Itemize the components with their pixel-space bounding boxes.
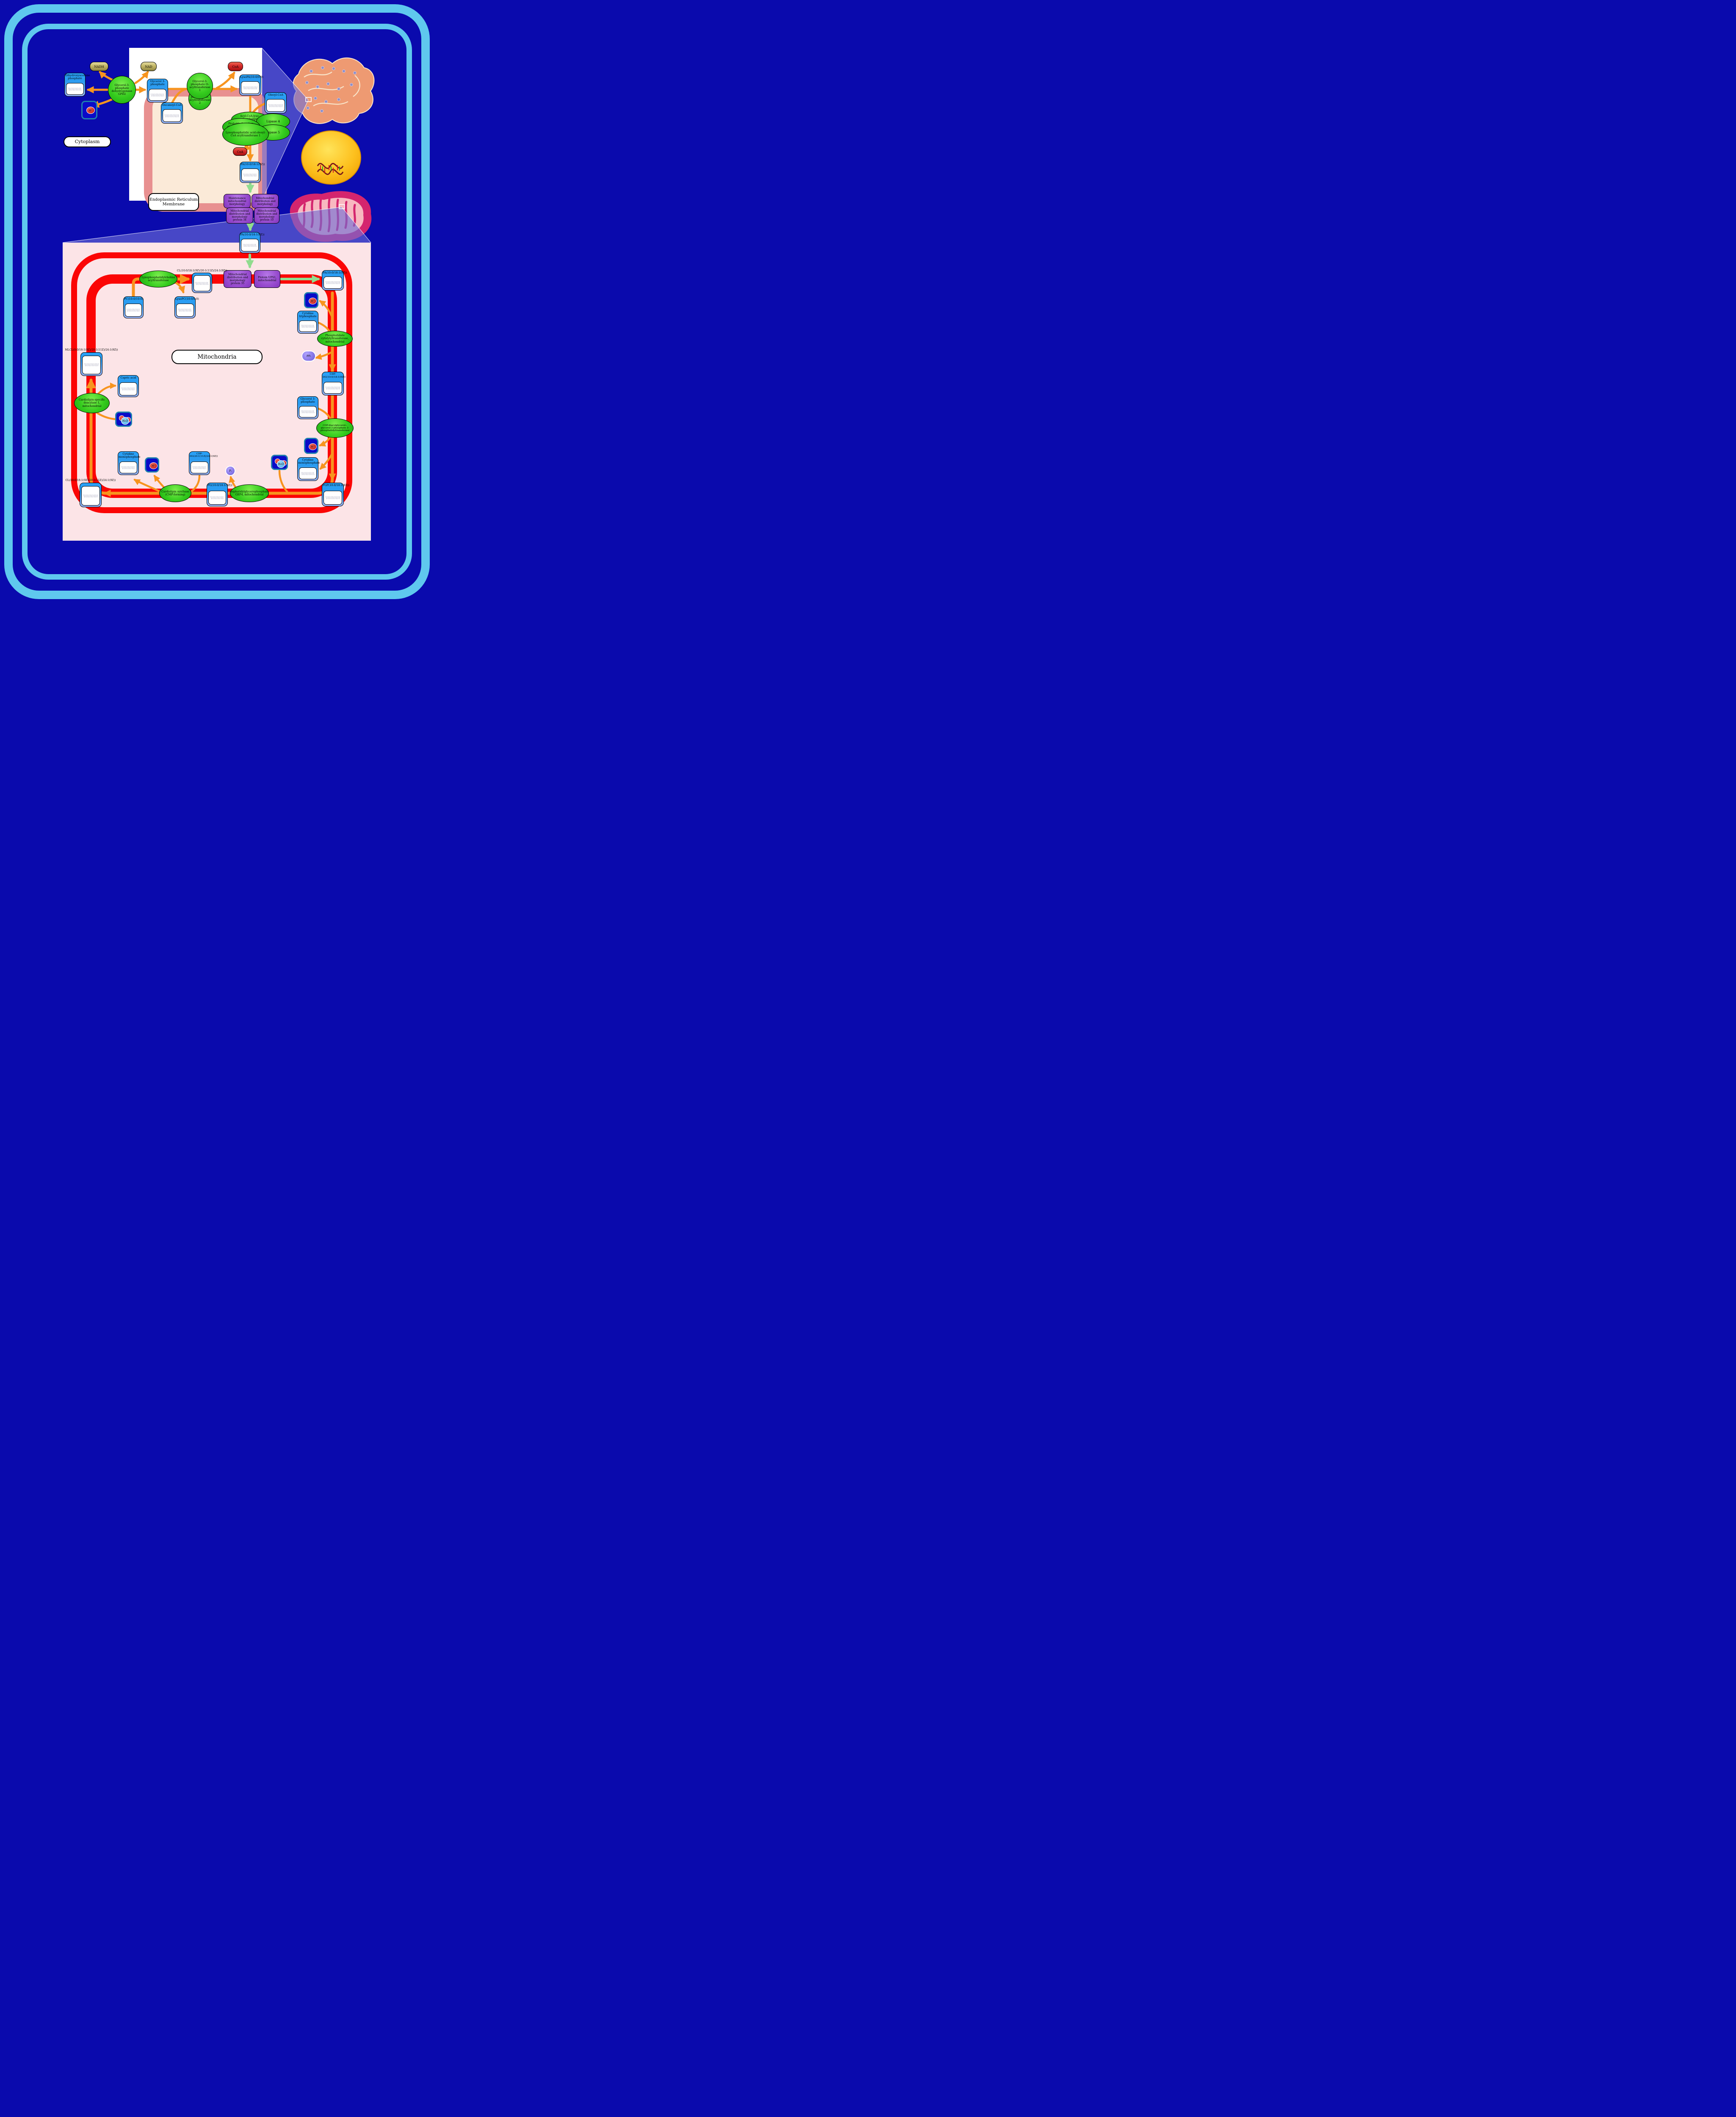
mmm-protein[interactable]: Maintenance mitochondrial morphology [224, 194, 251, 208]
g3p-er-label: Glycerol 3-phosphate [147, 79, 168, 86]
molecule-structure [301, 410, 315, 413]
nucleus-icon [301, 131, 361, 184]
er-illustration-icon [293, 58, 374, 124]
gpd2-label: Glycerol-3-phosphate dehydrogenase GPD2 [110, 84, 134, 96]
h-plus-label: H⁺ [88, 109, 92, 112]
er-membrane-label-text: Endoplasmic Reticulum Membrane [149, 197, 198, 207]
gpat1-enzyme[interactable]: Glycerol-3-phosphate O-acyltransferase 1 [187, 73, 213, 99]
pg-label: PG(10:0/18:1(9Z)) [207, 483, 227, 487]
cdp-dg2-node[interactable]: CDP-DG(20:1(11Z)/24:1(9Z)) [189, 451, 210, 475]
pa-er-node[interactable]: PA(10:0/18:1(9Z)) [240, 162, 261, 183]
molecule-structure [68, 88, 82, 91]
pathway-canvas: Cytoplasm Endoplasmic Reticulum Membrane… [0, 0, 434, 603]
nadh-label: NADH [94, 65, 104, 69]
pct-mito-label: Phosphatidate cytidylyltransferase, mito… [319, 334, 351, 343]
ups1-protein[interactable]: Protein UPS1, mitochondrial [254, 270, 280, 288]
cmp-left-label: Cytidine monophosphate [118, 452, 138, 459]
gep4-label: Phosphatidylglycerophosphatase GEP4, mit… [230, 490, 269, 496]
gpat1-label: Glycerol-3-phosphate O-acyltransferase 1 [188, 80, 211, 92]
pgs1-label: CDP-diacylglycerol--glycerol-3-phosphate… [318, 424, 352, 432]
capric-acid-node[interactable]: Capric acid [118, 375, 139, 397]
molecule-structure [301, 325, 315, 328]
pg-node[interactable]: PG(10:0/18:1(9Z)) [207, 483, 228, 506]
lysopa-node[interactable]: LysoPA(10:0/0:0) [239, 75, 261, 96]
coa-node-mid[interactable]: CoA [233, 147, 247, 156]
molecule-structure [122, 387, 135, 390]
mito-zoom-cone [63, 207, 371, 243]
h2o-left-node[interactable]: H₂O [115, 412, 132, 427]
molecule-structure [165, 114, 179, 117]
lysopa-label: LysoPA(10:0/0:0) [240, 75, 261, 79]
molecule-structure [326, 281, 340, 284]
pa-mito-node[interactable]: PA(10:0/18:1(9Z)) [322, 270, 344, 290]
lpcat-label: Lysophosphatidylcholine acyltransferase [141, 276, 176, 282]
decanoyl-coa-node[interactable]: Decanoyl-CoA [161, 102, 183, 124]
pa-er-label: PA(10:0/18:1(9Z)) [240, 162, 260, 166]
cl-top-label: CL(10:0/18:1(9Z)/20:1(11Z)/24:1(9Z)) [177, 269, 227, 272]
cmp-left-node[interactable]: Cytidine monophosphate [118, 451, 139, 475]
cmp-right-label: Cytidine monophosphate [298, 458, 318, 465]
cl-top-node[interactable] [192, 273, 212, 293]
h2o-bottom-node[interactable]: H₂O [271, 455, 288, 470]
molecule-structure [195, 282, 208, 285]
molecule-structure [326, 496, 340, 499]
pa-mito-label: PA(10:0/18:1(9Z)) [322, 271, 343, 274]
molecule-structure [243, 86, 257, 89]
molecule-structure [127, 309, 140, 312]
pgs1-enzyme[interactable]: CDP-diacylglycerol--glycerol-3-phosphate… [316, 418, 354, 438]
h-plus-right2-node[interactable]: H⁺ [304, 438, 318, 454]
nadh-node[interactable]: NADH [90, 62, 108, 71]
cdp-dg2-label: CDP-DG(20:1(11Z)/24:1(9Z)) [189, 452, 210, 458]
gpd2-enzyme[interactable]: Glycerol-3-phosphate dehydrogenase GPD2 [108, 76, 136, 104]
cdp-dg1-label: CDP-DG(10:0/18:1(9Z)) [322, 372, 343, 379]
molecule-structure [326, 387, 340, 390]
nad-node[interactable]: NAD [141, 62, 157, 71]
molecule-structure [243, 174, 257, 177]
cytoplasm-label: Cytoplasm [64, 136, 111, 147]
cld1-label: Cardiolipin-specific deacylase 1, mitoch… [76, 398, 108, 407]
mdm10-label: Mitochondrial distribution and morpholog… [255, 210, 278, 221]
er-membrane-label: Endoplasmic Reticulum Membrane [148, 193, 199, 211]
g3p-er-node[interactable]: Glycerol 3-phosphate [147, 79, 168, 102]
h-plus-label: H⁺ [311, 445, 315, 448]
pi-label: Pᵢ [229, 469, 232, 473]
molecule-structure [301, 472, 315, 475]
cld1-enzyme[interactable]: Cardiolipin-specific deacylase 1, mitoch… [74, 393, 110, 413]
pc-label: PC(10:0/10:0) [124, 297, 143, 301]
mdm34-protein[interactable]: Mitochondrial distribution and morpholog… [226, 207, 253, 224]
cmp-right-node[interactable]: Cytidine monophosphate [297, 457, 318, 481]
lysopc-node[interactable]: LysoPC(10:0/0:0) [174, 296, 196, 318]
ctp-node[interactable]: Cytidine triphosphate [297, 311, 318, 334]
molecule-structure [84, 363, 99, 366]
lpaat1-enzyme[interactable]: Lysophosphatidic acid:oleoyl-CoA acyltra… [222, 123, 269, 146]
h-plus-label: H⁺ [152, 464, 155, 467]
h2o-label: H₂O [278, 463, 284, 466]
lpaat1-label: Lysophosphatidic acid:oleoyl-CoA acyltra… [224, 131, 267, 137]
cytoplasm-label-text: Cytoplasm [75, 139, 100, 144]
mmm-label: Maintenance mitochondrial morphology [225, 197, 249, 206]
pi-node[interactable]: Pᵢ [225, 466, 235, 476]
mlcl-node[interactable] [80, 352, 102, 376]
pgp-node[interactable]: PGP(10:0/18:1(9Z)) [322, 483, 344, 506]
mdm-label: Mitochondrial distribution and morpholog… [253, 197, 277, 206]
oleoyl-coa-label: Oleoyl-CoA [265, 93, 286, 97]
pct-mito-enzyme[interactable]: Phosphatidate cytidylyltransferase, mito… [317, 331, 353, 347]
mitochondria-label-text: Mitochondria [197, 354, 236, 360]
dhap-label: Dihydroxyacetone phosphate [65, 73, 85, 80]
cdp-dg1-node[interactable]: CDP-DG(10:0/18:1(9Z)) [322, 372, 344, 395]
ppi-node[interactable]: PPᵢ [301, 351, 316, 362]
molecule-structure [210, 496, 224, 499]
molecule-structure [243, 244, 257, 247]
coa-mid-label: CoA [237, 150, 243, 154]
pa-intermembrane-node[interactable]: PA(10:0/18:1(9Z)) [239, 232, 260, 253]
g3p-mito-node[interactable]: Glycerol 3-phosphate [297, 396, 318, 419]
h-plus-label: H⁺ [311, 299, 315, 303]
lipase4-label: Lipase 4 [266, 120, 280, 123]
nad-label: NAD [145, 65, 152, 69]
h-plus-er-node[interactable]: H⁺ [81, 101, 97, 119]
molecule-structure [122, 466, 135, 469]
molecule-structure [151, 94, 165, 97]
h-plus-bottom-node[interactable]: H⁺ [145, 457, 159, 473]
mdm-protein[interactable]: Mitochondrial distribution and morpholog… [252, 194, 279, 208]
mitochondria-label: Mitochondria [171, 350, 263, 364]
mdm10-protein[interactable]: Mitochondrial distribution and morpholog… [254, 207, 279, 224]
pgp-label: PGP(10:0/18:1(9Z)) [322, 483, 343, 487]
mdm34-label: Mitochondrial distribution and morpholog… [227, 210, 252, 221]
cl-bottom-label: CL(10:0/18:1(9Z)/20:1(11Z)/24:1(9Z)) [66, 479, 116, 482]
pa-intermembrane-label: PA(10:0/18:1(9Z)) [240, 232, 260, 236]
molecule-structure [268, 104, 283, 107]
decanoyl-coa-label: Decanoyl-CoA [161, 103, 182, 107]
capric-acid-label: Capric acid [118, 376, 138, 379]
molecule-structure [193, 466, 207, 469]
cl-bottom-node[interactable] [80, 483, 102, 507]
cls-label: Cardiolipin synthase (CMP-forming) [161, 490, 190, 496]
gep4-enzyme[interactable]: Phosphatidylglycerophosphatase GEP4, mit… [230, 484, 269, 502]
coa-top-label: CoA [232, 65, 238, 69]
mdm35-protein[interactable]: Mitochondrial distribution and morpholog… [224, 270, 252, 288]
molecule-structure [83, 495, 98, 497]
coa-node-top[interactable]: CoA [228, 62, 243, 71]
dhap-node[interactable]: Dihydroxyacetone phosphate [64, 73, 86, 97]
cls-enzyme[interactable]: Cardiolipin synthase (CMP-forming) [159, 484, 191, 502]
pc-node[interactable]: PC(10:0/10:0) [123, 296, 144, 318]
molecule-structure [178, 309, 192, 312]
mdm35-label: Mitochondrial distribution and morpholog… [225, 273, 250, 285]
ups1-label: Protein UPS1, mitochondrial [255, 276, 279, 282]
oleoyl-coa-node[interactable]: Oleoyl-CoA [265, 92, 287, 113]
g3p-mito-label: Glycerol 3-phosphate [298, 397, 318, 404]
h-plus-right1-node[interactable]: H⁺ [304, 292, 318, 308]
lpcat-enzyme[interactable]: Lysophosphatidylcholine acyltransferase [139, 271, 177, 287]
h2o-label: H₂O [122, 420, 128, 423]
lysopc-label: LysoPC(10:0/0:0) [175, 297, 195, 301]
mlcl-label: MLCL(0:0/18:1(9Z)/20:1(11Z)/24:1(9Z)) [65, 348, 118, 351]
ctp-label: Cytidine triphosphate [298, 311, 318, 318]
ppi-label: PPᵢ [307, 354, 311, 358]
